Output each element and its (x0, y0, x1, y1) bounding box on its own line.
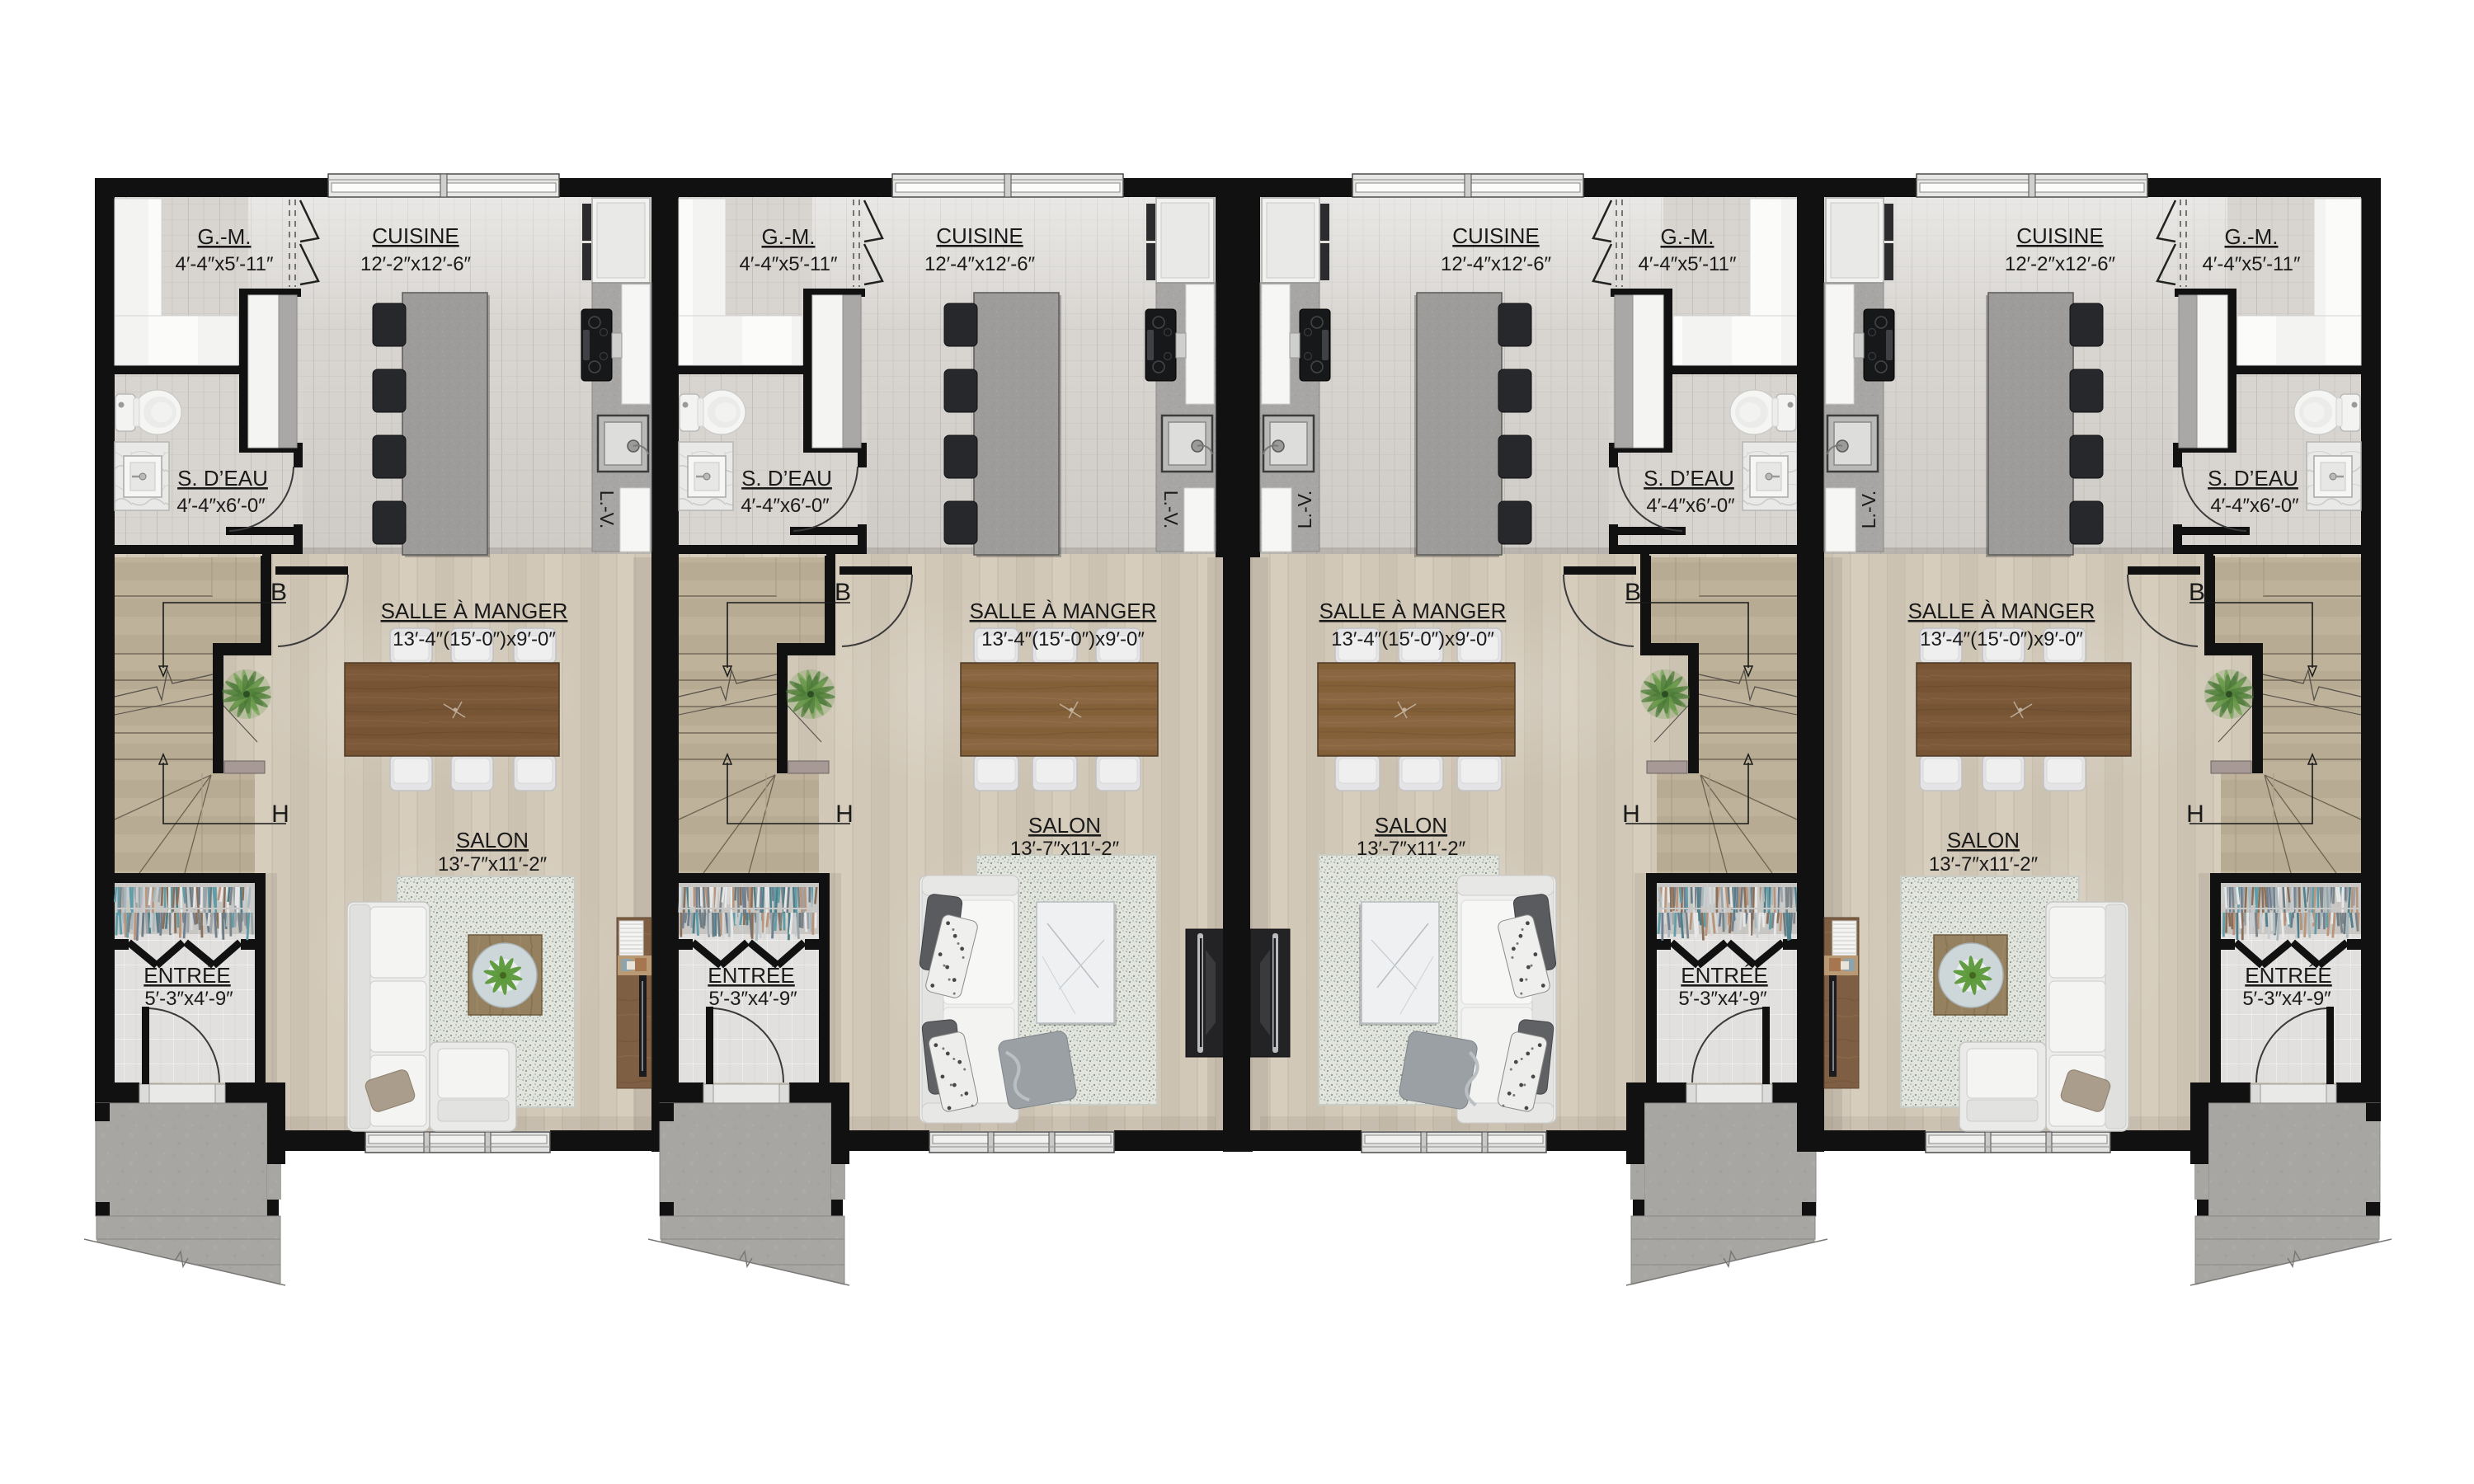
svg-text:CUISINE: CUISINE (372, 223, 459, 248)
svg-text:4′-4″x5′-11″: 4′-4″x5′-11″ (1639, 253, 1737, 275)
svg-text:12′-4″x12′-6″: 12′-4″x12′-6″ (1441, 253, 1552, 275)
svg-text:ENTRÉE: ENTRÉE (2245, 963, 2331, 988)
svg-text:4′-4″x6′-0″: 4′-4″x6′-0″ (176, 495, 266, 517)
svg-text:G.-M.: G.-M. (198, 224, 252, 249)
svg-text:5′-3″x4′-9″: 5′-3″x4′-9″ (2242, 988, 2331, 1010)
svg-text:13′-7″x11′-2″: 13′-7″x11′-2″ (1929, 853, 2039, 876)
svg-text:13′-4″(15′-0″)x9′-0″: 13′-4″(15′-0″)x9′-0″ (1920, 628, 2083, 650)
svg-text:ENTRÉE: ENTRÉE (1681, 963, 1767, 988)
svg-text:13′-4″(15′-0″)x9′-0″: 13′-4″(15′-0″)x9′-0″ (393, 628, 556, 650)
svg-text:CUISINE: CUISINE (2016, 223, 2103, 248)
svg-text:B: B (835, 579, 851, 606)
svg-text:SALON: SALON (456, 828, 529, 852)
svg-text:SALON: SALON (1375, 813, 1447, 838)
svg-text:ENTRÉE: ENTRÉE (143, 963, 230, 988)
svg-text:13′-7″x11′-2″: 13′-7″x11′-2″ (438, 853, 548, 876)
svg-text:SALON: SALON (1947, 828, 2020, 852)
svg-text:S. D’EAU: S. D’EAU (2208, 466, 2298, 491)
svg-text:12′-4″x12′-6″: 12′-4″x12′-6″ (924, 253, 1036, 275)
svg-text:G.-M.: G.-M. (2225, 224, 2279, 249)
svg-text:SALLE À MANGER: SALLE À MANGER (1319, 599, 1507, 623)
svg-text:4′-4″x6′-0″: 4′-4″x6′-0″ (2210, 495, 2299, 517)
svg-text:13′-7″x11′-2″: 13′-7″x11′-2″ (1357, 838, 1466, 860)
svg-text:B: B (2189, 579, 2205, 606)
svg-text:13′-4″(15′-0″)x9′-0″: 13′-4″(15′-0″)x9′-0″ (981, 628, 1145, 650)
svg-text:12′-2″x12′-6″: 12′-2″x12′-6″ (2005, 253, 2116, 275)
svg-text:S. D’EAU: S. D’EAU (741, 466, 832, 491)
svg-text:L.-V.: L.-V. (1294, 491, 1315, 528)
svg-text:13′-7″x11′-2″: 13′-7″x11′-2″ (1010, 838, 1120, 860)
svg-text:SALLE À MANGER: SALLE À MANGER (381, 599, 568, 623)
svg-text:SALLE À MANGER: SALLE À MANGER (970, 599, 1157, 623)
svg-text:G.-M.: G.-M. (1661, 224, 1714, 249)
svg-text:5′-3″x4′-9″: 5′-3″x4′-9″ (144, 988, 233, 1010)
svg-text:12′-2″x12′-6″: 12′-2″x12′-6″ (360, 253, 472, 275)
svg-text:4′-4″x6′-0″: 4′-4″x6′-0″ (741, 495, 830, 517)
svg-text:G.-M.: G.-M. (762, 224, 816, 249)
svg-text:13′-4″(15′-0″)x9′-0″: 13′-4″(15′-0″)x9′-0″ (1331, 628, 1494, 650)
svg-text:ENTRÉE: ENTRÉE (708, 963, 794, 988)
svg-text:SALLE À MANGER: SALLE À MANGER (1908, 599, 2095, 623)
svg-text:4′-4″x6′-0″: 4′-4″x6′-0″ (1646, 495, 1735, 517)
svg-text:5′-3″x4′-9″: 5′-3″x4′-9″ (708, 988, 797, 1010)
svg-text:L.-V.: L.-V. (596, 491, 618, 528)
svg-text:S. D’EAU: S. D’EAU (1644, 466, 1734, 491)
svg-text:CUISINE: CUISINE (936, 223, 1023, 248)
svg-text:B: B (1625, 579, 1641, 606)
svg-text:B: B (270, 579, 287, 606)
svg-text:SALON: SALON (1028, 813, 1101, 838)
svg-text:L.-V.: L.-V. (1160, 491, 1182, 528)
svg-text:4′-4″x5′-11″: 4′-4″x5′-11″ (740, 253, 838, 275)
svg-text:S. D’EAU: S. D’EAU (177, 466, 268, 491)
svg-text:4′-4″x5′-11″: 4′-4″x5′-11″ (176, 253, 274, 275)
svg-text:4′-4″x5′-11″: 4′-4″x5′-11″ (2203, 253, 2301, 275)
svg-text:5′-3″x4′-9″: 5′-3″x4′-9″ (1678, 988, 1767, 1010)
svg-text:L.-V.: L.-V. (1858, 491, 1879, 528)
svg-text:CUISINE: CUISINE (1452, 223, 1539, 248)
